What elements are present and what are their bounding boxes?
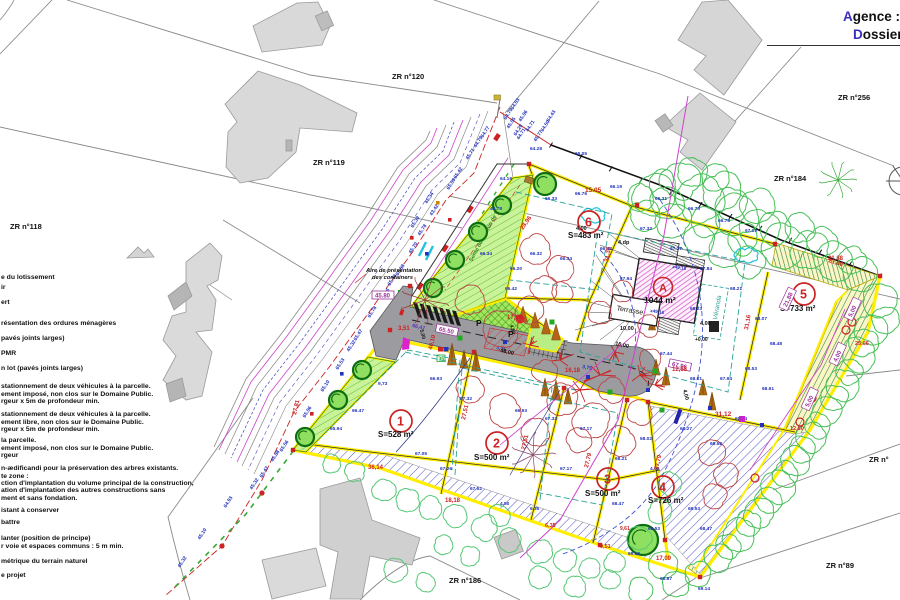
svg-text:ZR n°: ZR n° [869,455,889,464]
svg-text:ZR n°89: ZR n°89 [826,561,854,570]
svg-text:45.80: 45.80 [375,294,391,300]
svg-text:67.32: 67.32 [460,396,472,402]
svg-text:ction d'implantation du volume: ction d'implantation du volume principal… [1,480,194,487]
svg-text:4,50: 4,50 [500,501,510,507]
svg-text:67.17: 67.17 [580,426,592,432]
svg-text:des containers: des containers [372,275,414,281]
svg-text:4,00: 4,00 [700,321,711,327]
svg-text:45.78: 45.78 [490,206,502,212]
svg-text:4,dp: 4,dp [618,240,630,246]
svg-text:A: A [659,283,667,295]
svg-text:66.32: 66.32 [530,251,542,257]
svg-text:stationnement de deux véhicule: stationnement de deux véhicules à la par… [1,383,151,390]
svg-text:rgeur x 5m de profondeur min.: rgeur x 5m de profondeur min. [1,398,100,405]
svg-text:ement imposé, non clos sur le: ement imposé, non clos sur le Domaine Pu… [1,391,153,398]
svg-text:4,00: 4,00 [576,226,587,232]
svg-text:67.33: 67.33 [640,226,652,232]
svg-text:S=528 m²: S=528 m² [378,430,414,439]
svg-text:ZR n°120: ZR n°120 [392,72,424,81]
svg-text:ir: ir [1,284,6,291]
svg-text:e projet: e projet [1,572,26,579]
svg-text:68.21: 68.21 [730,286,742,292]
svg-text:ZR n°184: ZR n°184 [774,174,807,183]
svg-text:67.94: 67.94 [720,376,732,382]
svg-text:3,51: 3,51 [398,326,410,332]
svg-text:r voie et espaces communs : 5: r voie et espaces communs : 5 m min. [1,543,124,550]
svg-text:4: 4 [659,481,666,495]
svg-text:65.94: 65.94 [330,426,342,432]
svg-text:68.07: 68.07 [755,316,767,322]
svg-text:12,58: 12,58 [672,367,688,373]
svg-text:68.48: 68.48 [770,341,782,347]
svg-text:17,09: 17,09 [656,556,672,562]
svg-text:68.01: 68.01 [690,376,702,382]
svg-text:66.75: 66.75 [688,206,700,212]
svg-text:la parcelle.: la parcelle. [1,437,36,444]
svg-text:ation d'implantation des autre: ation d'implantation des autres construc… [1,487,166,494]
svg-text:67.32: 67.32 [545,416,557,422]
svg-text:67.94: 67.94 [620,276,632,282]
svg-text:Agence :: Agence : [843,9,900,24]
svg-text:68.61: 68.61 [762,386,774,392]
svg-text:18,18: 18,18 [445,498,461,504]
svg-text:68.47: 68.47 [700,526,712,532]
svg-text:S=726 m²: S=726 m² [648,496,684,505]
svg-text:31,12: 31,12 [715,411,732,418]
svg-text:66.19: 66.19 [610,184,622,190]
svg-text:64.19: 64.19 [500,176,512,182]
svg-text:69.18: 69.18 [628,551,640,557]
svg-text:9,73: 9,73 [378,381,388,387]
svg-text:e du lotissement: e du lotissement [1,274,55,281]
svg-text:S=500 m²: S=500 m² [585,489,621,498]
svg-text:lanter (position de principe): lanter (position de principe) [1,535,91,542]
svg-text:16,18: 16,18 [565,368,581,374]
svg-text:67.44: 67.44 [660,351,672,357]
svg-text:68.21: 68.21 [615,456,627,462]
svg-text:PMR: PMR [1,350,16,357]
svg-text:67.27: 67.27 [670,246,682,252]
svg-text:17,98: 17,98 [507,315,523,321]
svg-text:istant à conserver: istant à conserver [1,507,60,514]
svg-text:2: 2 [493,437,500,451]
svg-text:n-ædificandi pour la préservat: n-ædificandi pour la préservation des ar… [1,465,178,472]
svg-text:6,35: 6,35 [545,523,556,529]
svg-text:ZR n°118: ZR n°118 [10,222,42,231]
svg-text:S=483 m²: S=483 m² [568,231,604,240]
svg-text:36,14: 36,14 [368,465,384,471]
svg-text:66.31: 66.31 [655,196,667,202]
svg-text:68.53: 68.53 [745,366,757,372]
svg-text:10,00: 10,00 [620,326,634,332]
svg-text:ement imposé, non clos sur le: ement imposé, non clos sur le Domaine Pu… [1,445,153,452]
svg-text:66.34: 66.34 [560,256,572,262]
svg-text:66.42: 66.42 [505,286,517,292]
svg-text:12,80: 12,80 [790,426,804,432]
svg-text:35: 35 [439,357,445,363]
svg-text:66.93: 66.93 [430,376,442,382]
svg-text:68.27: 68.27 [680,426,692,432]
svg-text:66.20: 66.20 [510,266,522,272]
svg-text:ZR n°119: ZR n°119 [313,158,345,167]
svg-text:S=500 m²: S=500 m² [474,453,510,462]
svg-text:ment et sans fondation.: ment et sans fondation. [1,495,77,502]
svg-text:68.02: 68.02 [640,436,652,442]
svg-text:9,61: 9,61 [620,526,630,532]
svg-text:68.53: 68.53 [648,526,660,532]
svg-text:67.05: 67.05 [415,451,427,457]
svg-text:67.17: 67.17 [560,466,572,472]
svg-text:66.47: 66.47 [352,408,364,414]
svg-text:68.87: 68.87 [660,576,672,582]
svg-text:ZR n°256: ZR n°256 [838,93,870,102]
svg-text:n lot (pavés joints larges): n lot (pavés joints larges) [1,365,83,372]
svg-text:te zone :: te zone : [1,473,29,480]
svg-text:P: P [476,318,482,328]
svg-text:66.93: 66.93 [515,408,527,414]
svg-text:15.05: 15.05 [585,187,602,194]
svg-text:66.78: 66.78 [718,218,730,224]
svg-text:67.52: 67.52 [470,486,482,492]
svg-text:métrique du terrain naturel: métrique du terrain naturel [1,558,88,565]
svg-text:Dossier: Dossier [853,27,900,42]
svg-text:6,35: 6,35 [530,506,540,512]
svg-text:3: 3 [604,473,611,487]
svg-text:Aire de présentation: Aire de présentation [365,268,423,274]
svg-text:rgeur: rgeur [1,452,19,459]
svg-text:67.19: 67.19 [745,228,757,234]
svg-text:68.47: 68.47 [612,501,624,507]
svg-text:ert: ert [1,299,10,306]
svg-text:64.28: 64.28 [530,146,542,152]
svg-text:rgeur x 5m de profondeur min.: rgeur x 5m de profondeur min. [1,426,100,433]
svg-text:1: 1 [397,415,404,429]
svg-text:stationnement de deux véhicule: stationnement de deux véhicules à la par… [1,411,151,418]
svg-text:69.14: 69.14 [698,586,710,592]
svg-text:67.26: 67.26 [440,466,452,472]
svg-text:pavés joints larges): pavés joints larges) [1,335,64,342]
svg-text:ZR n°186: ZR n°186 [449,576,481,585]
svg-text:68.58: 68.58 [710,441,722,447]
svg-text:+0,00: +0,00 [695,337,708,343]
svg-text:66.33: 66.33 [545,196,557,202]
svg-text:5: 5 [800,288,807,302]
svg-text:25,06: 25,06 [855,341,869,347]
svg-text:67.84: 67.84 [700,266,712,272]
svg-text:battre: battre [1,519,20,526]
svg-text:65.05: 65.05 [575,151,587,157]
svg-text:résentation des ordures ménagè: résentation des ordures ménagères [1,320,116,327]
svg-text:68.23: 68.23 [690,306,702,312]
svg-text:ement libre, non clos sur le D: ement libre, non clos sur le Domaine Pub… [1,419,144,426]
svg-text:68.53: 68.53 [688,506,700,512]
svg-text:66.34: 66.34 [480,251,492,257]
